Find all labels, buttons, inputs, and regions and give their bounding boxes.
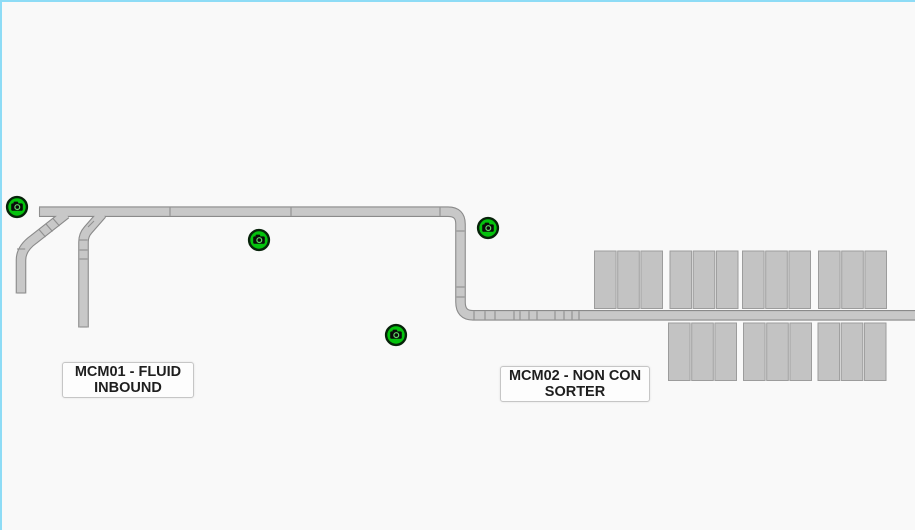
chute-block (818, 323, 840, 381)
chute-block (790, 323, 812, 381)
camera-viewfinder (256, 235, 261, 237)
chute-block (641, 251, 663, 309)
zone-label-mcm01: MCM01 - FLUID INBOUND (62, 362, 194, 398)
chute-block (819, 251, 841, 309)
chute-block (842, 251, 864, 309)
zone-label-mcm02: MCM02 - NON CON SORTER (500, 366, 650, 402)
chute-block (865, 251, 887, 309)
camera-viewfinder (393, 330, 398, 332)
chute-block (670, 251, 692, 309)
conveyor-diagram (2, 2, 915, 530)
chute-block (767, 323, 789, 381)
chute-block (743, 251, 765, 309)
camera-viewfinder (14, 202, 19, 204)
camera-viewfinder (485, 223, 490, 225)
chute-block (595, 251, 617, 309)
chute-block (789, 251, 811, 309)
chute-block (669, 323, 691, 381)
camera-icon[interactable] (477, 217, 499, 239)
chute-block (841, 323, 863, 381)
camera-icon[interactable] (6, 196, 28, 218)
chute-block (766, 251, 788, 309)
chute-block (693, 251, 715, 309)
chute-block (618, 251, 640, 309)
chute-block (716, 251, 738, 309)
chute-block (864, 323, 886, 381)
facility-map: MCM01 - FLUID INBOUNDMCM02 - NON CON SOR… (0, 0, 915, 530)
chute-block (692, 323, 714, 381)
chute-block (715, 323, 737, 381)
camera-icon[interactable] (385, 324, 407, 346)
camera-icon[interactable] (248, 229, 270, 251)
chute-block (744, 323, 766, 381)
